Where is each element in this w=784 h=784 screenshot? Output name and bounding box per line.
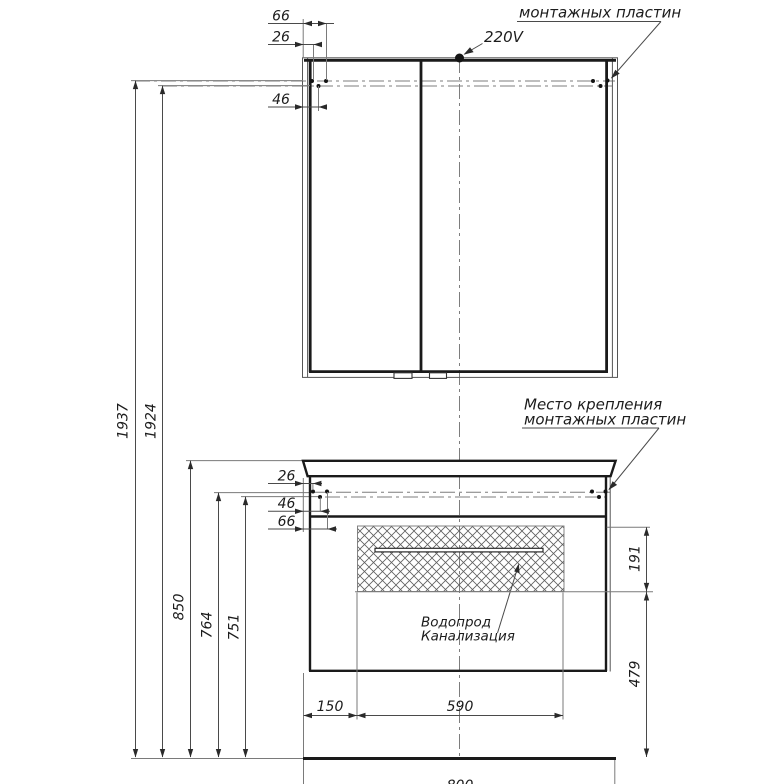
mirror-right-handle bbox=[430, 373, 447, 379]
dim-764: 764 bbox=[200, 612, 216, 639]
vanity-left-dimensions: 26 46 66 bbox=[268, 469, 337, 533]
mounting-plates-top-leader bbox=[612, 22, 662, 79]
dim-66-vanity: 66 bbox=[278, 514, 296, 530]
mounting-plates-top-label: монтажных пластин bbox=[519, 4, 681, 22]
power-leader-arrow bbox=[464, 47, 474, 55]
mounting-dot bbox=[590, 490, 594, 494]
dim-479: 479 bbox=[628, 661, 644, 688]
mirror-left-handle bbox=[394, 373, 412, 379]
mounting-dot bbox=[311, 490, 315, 494]
height-dimensions: 1937 1924 850 764 751 bbox=[116, 81, 323, 759]
mounting-dot bbox=[599, 84, 603, 88]
dim-1937: 1937 bbox=[116, 403, 132, 439]
dim-191: 191 bbox=[628, 545, 644, 572]
mounting-place-label-line2: монтажных пластин bbox=[524, 411, 686, 429]
dim-26-vanity: 26 bbox=[278, 469, 296, 485]
dim-751: 751 bbox=[227, 614, 243, 641]
vanity-countertop bbox=[303, 461, 616, 476]
dim-46-vanity: 46 bbox=[278, 496, 296, 512]
utilities-connection-zone bbox=[358, 526, 565, 592]
mounting-dot bbox=[604, 490, 608, 494]
mounting-place-leader bbox=[609, 428, 659, 490]
mounting-dot bbox=[591, 79, 595, 83]
mounting-dot bbox=[597, 495, 601, 499]
power-label: 220V bbox=[484, 28, 525, 46]
top-annotations: 220V монтажных пластин bbox=[464, 4, 682, 79]
dim-590: 590 bbox=[447, 699, 474, 715]
drain-slot bbox=[375, 548, 543, 552]
dim-850: 850 bbox=[172, 594, 188, 621]
utilities-label-line2: Канализация bbox=[421, 629, 515, 645]
dim-26-top: 26 bbox=[272, 30, 290, 46]
dim-150: 150 bbox=[317, 699, 344, 715]
dim-1924: 1924 bbox=[144, 403, 160, 439]
dim-66-top: 66 bbox=[272, 9, 290, 25]
dim-46-top: 46 bbox=[272, 92, 290, 108]
technical-drawing: 220V монтажных пластин 66 26 46 bbox=[0, 0, 784, 784]
dim-800: 800 bbox=[447, 778, 474, 784]
technical-drawing-page: 220V монтажных пластин 66 26 46 bbox=[0, 0, 784, 784]
power-point-220v bbox=[455, 54, 464, 63]
mounting-dot bbox=[606, 79, 610, 83]
